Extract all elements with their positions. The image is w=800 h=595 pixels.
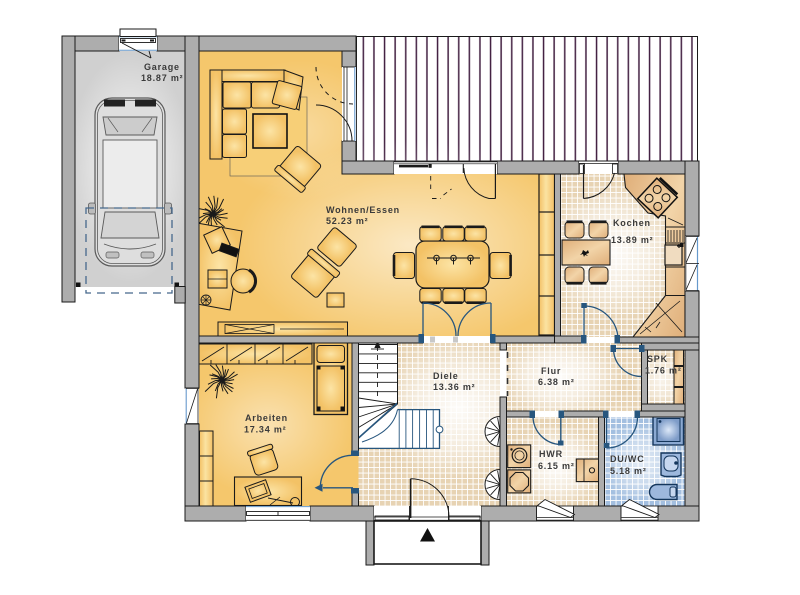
svg-text:18.87 m²: 18.87 m² [141,73,183,83]
svg-text:17.34 m²: 17.34 m² [244,425,286,435]
svg-text:Arbeiten: Arbeiten [245,413,288,423]
svg-text:Kochen: Kochen [613,218,651,228]
svg-text:DU/WC: DU/WC [610,454,645,464]
svg-text:5.18 m²: 5.18 m² [610,466,647,476]
svg-text:HWR: HWR [539,449,563,459]
svg-text:13.36 m²: 13.36 m² [433,382,475,392]
svg-text:6.15 m²: 6.15 m² [538,461,575,471]
svg-text:52.23 m²: 52.23 m² [326,216,368,226]
svg-text:Flur: Flur [541,366,561,376]
svg-text:13.89 m²: 13.89 m² [611,235,653,245]
svg-text:Garage: Garage [144,62,180,72]
svg-text:Diele: Diele [433,371,459,381]
svg-text:SPK: SPK [647,354,668,364]
svg-text:Wohnen/Essen: Wohnen/Essen [326,205,400,215]
svg-text:6.38 m²: 6.38 m² [538,377,575,387]
svg-text:1.76 m²: 1.76 m² [645,366,682,376]
